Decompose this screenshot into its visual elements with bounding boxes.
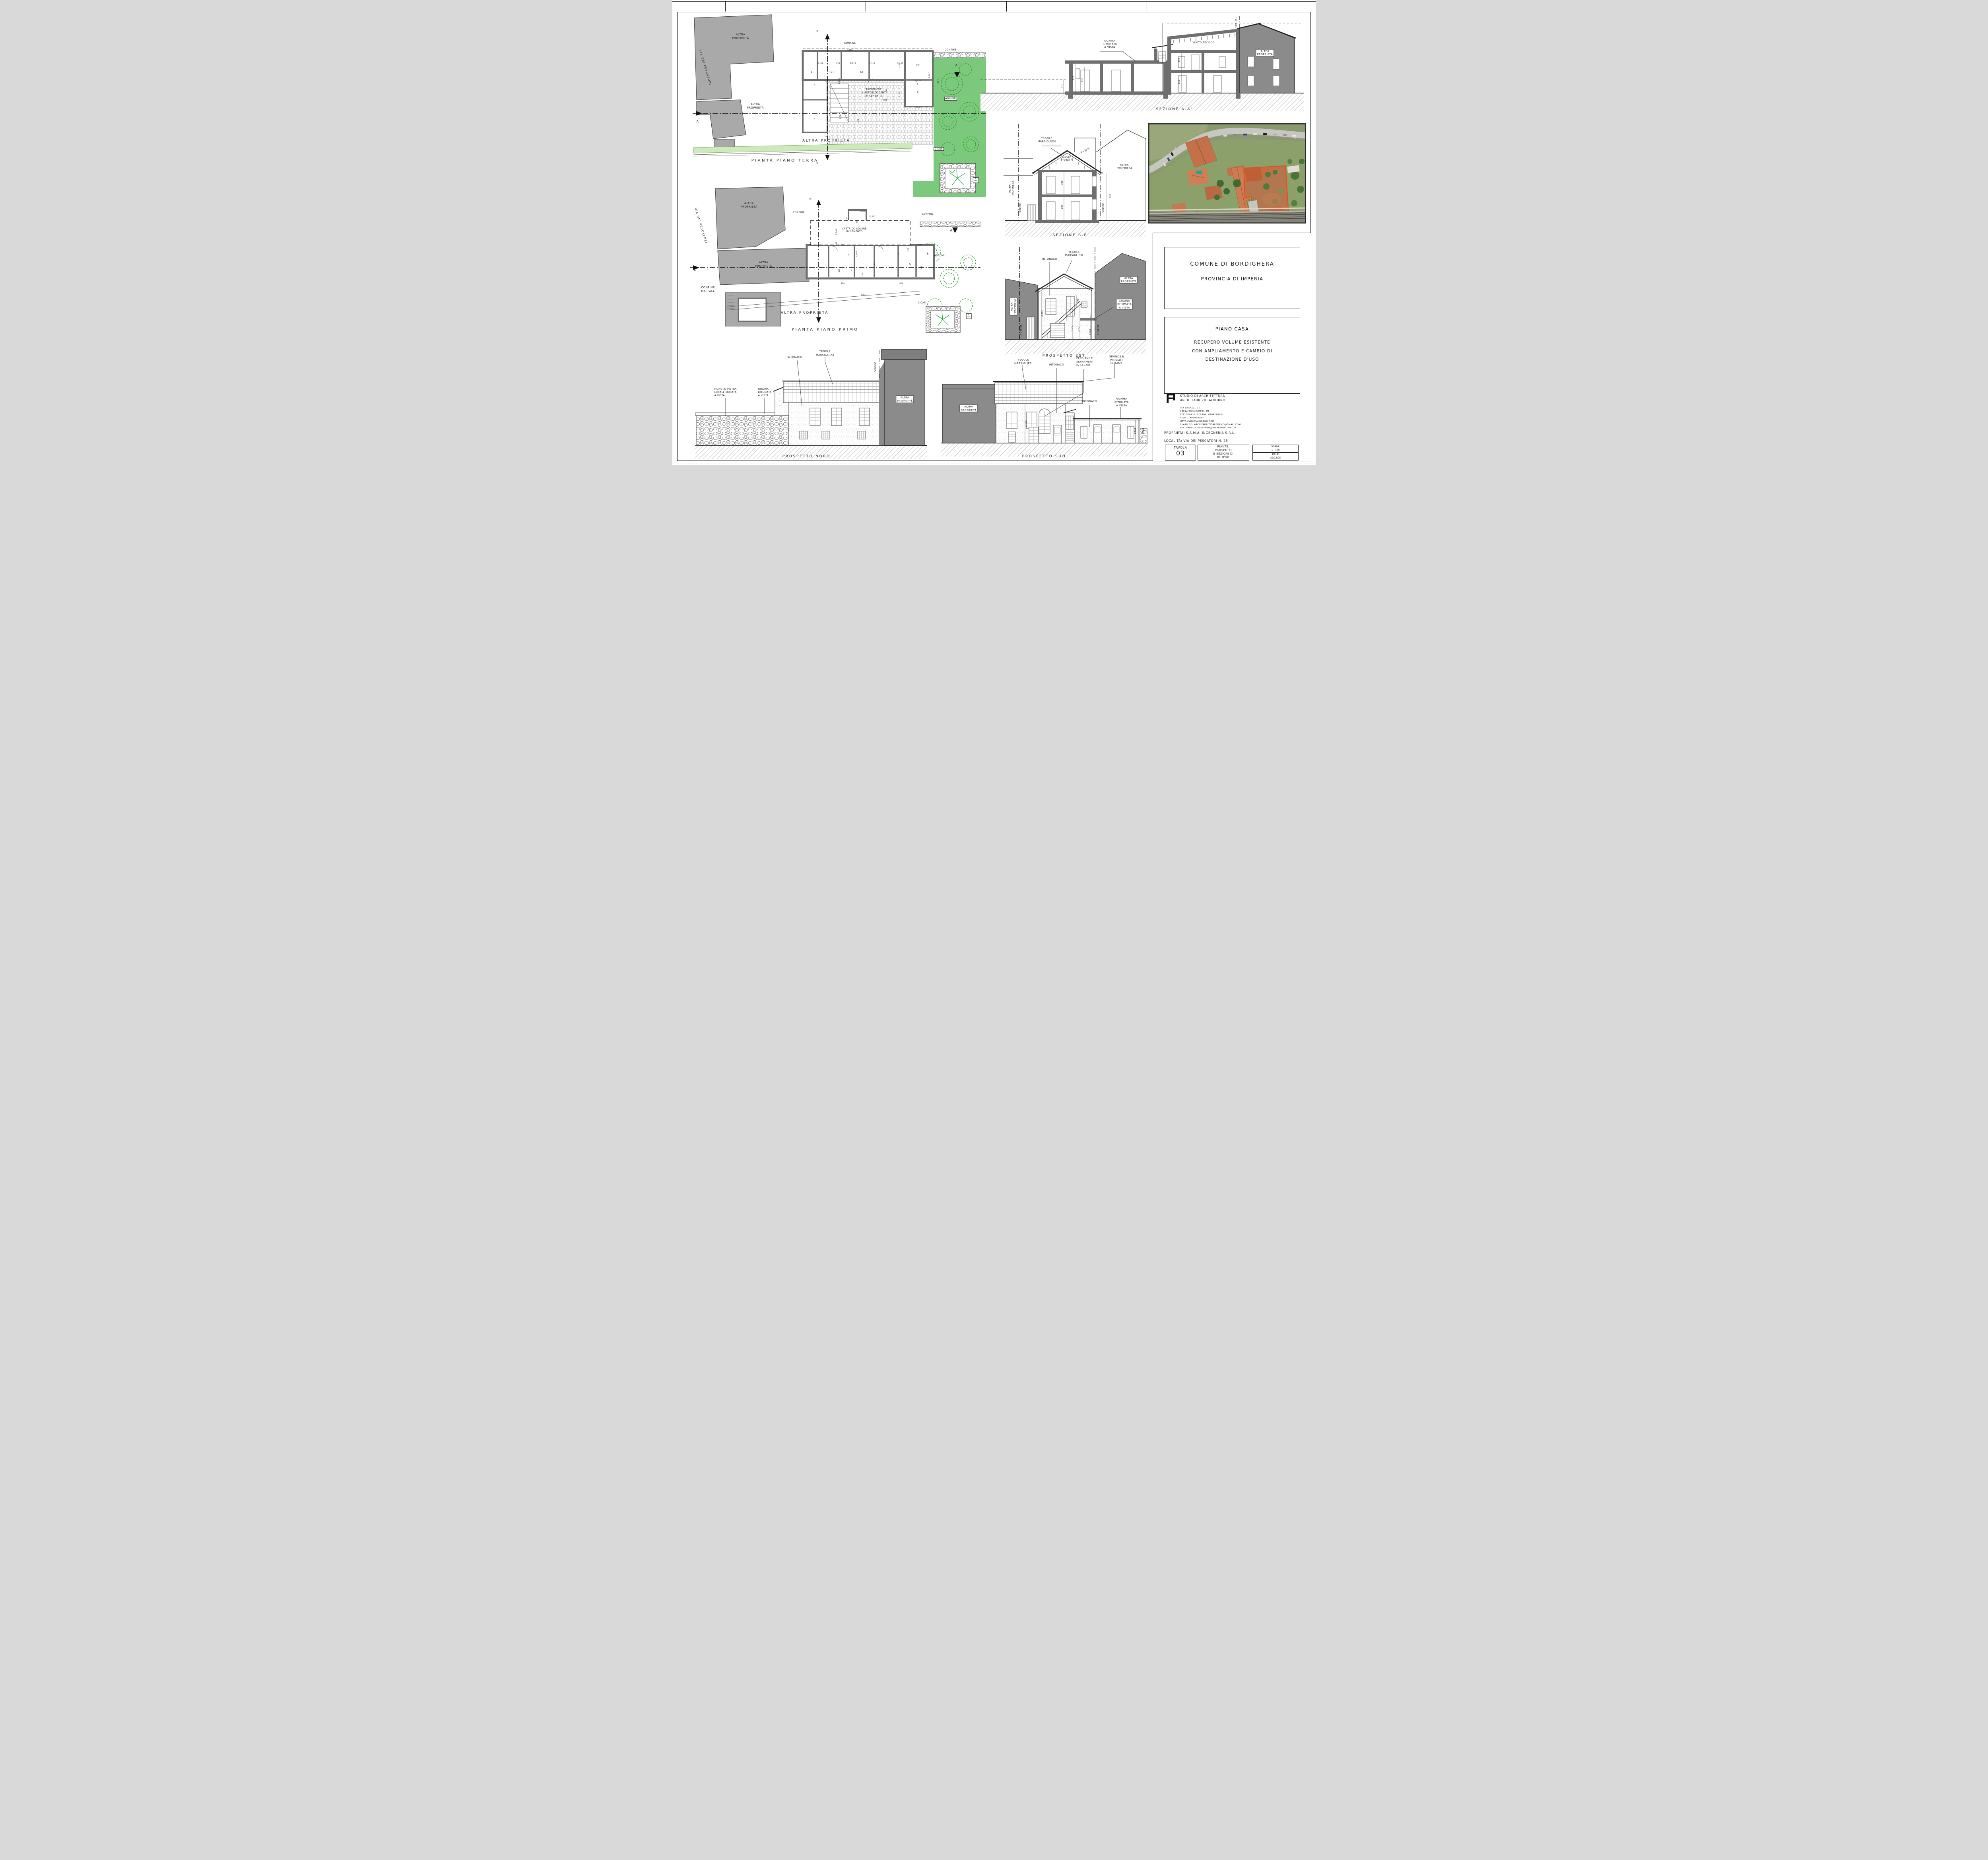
drawing-label: GUAINA BITUMATA A VISTA xyxy=(1116,299,1133,309)
drawing-label: PAVIMENTO IN AUTOBLOCCANTI IN CEMENTO xyxy=(861,88,887,97)
drawing-label: VIA DEI PESCATORI xyxy=(698,49,712,86)
piano-casa-title: PIANO CASA xyxy=(1215,326,1249,332)
drawing-label: GUAINA BITUMATA A VISTA xyxy=(1103,39,1117,49)
studio-logo-icon xyxy=(1165,393,1177,404)
drawing-label: CONFINE MAPPALE xyxy=(701,286,715,293)
drawing-label: 320 xyxy=(862,273,864,277)
scale-box: SCALA: 1 : 100 xyxy=(1252,445,1299,453)
drawing-label: B xyxy=(810,311,812,315)
drawing-label: INTONACO xyxy=(1042,257,1057,260)
drawing-label: 445 xyxy=(858,119,860,123)
drawing-label: 1055 xyxy=(861,294,866,297)
drawing-label: TEGOLE MARSIGLIESI xyxy=(1038,136,1056,143)
drawing-label: B xyxy=(927,253,928,256)
drawing-label: CONFINE xyxy=(945,49,956,52)
drawing-label: CICAS xyxy=(918,301,926,305)
drawing-label: CONFINE xyxy=(844,42,856,45)
comune-title: COMUNE DI BORDIGHERA xyxy=(1165,261,1300,267)
drawing-label: 150 xyxy=(846,217,848,221)
drawing-label: 3,781 xyxy=(840,113,842,119)
drawing-label: B xyxy=(816,162,818,165)
elevation-nord-labels: TEGOLE MARSIGLIESIINTONACOMURO IN PIETRA… xyxy=(695,345,927,461)
drawing-label: 2,504 xyxy=(1072,325,1074,332)
drawing-label: 2,704 xyxy=(1078,325,1081,332)
drawing-label: 0,950 xyxy=(860,211,866,213)
plan-piano-primo: ALTRA PROPRIETÀVIA DEI PESCATORIALTRA PR… xyxy=(687,186,980,334)
drawing-label: 355 xyxy=(841,244,845,247)
drawing-label: 650 xyxy=(1109,194,1112,198)
drawing-label: CT xyxy=(831,71,834,74)
elevation-sud-labels: TEGOLE MARSIGLIESIINTONACOPERSIANE E SER… xyxy=(941,353,1147,460)
drawing-label: 650 xyxy=(1158,58,1161,62)
drawing-label: VUOTO TECNICO xyxy=(1061,156,1073,163)
drawing-label: 250 xyxy=(1081,78,1084,82)
drawing-label: GUAINA BITUMATA A VISTA xyxy=(758,388,772,397)
scala-value: 1 : 100 xyxy=(1253,449,1298,452)
drawing-label: ALTRA PROPRIETÀ xyxy=(747,103,763,110)
owner-line: PROPRIETÀ: S.A.M.A. INGEGNERIA S.R.L. xyxy=(1164,431,1235,435)
section-b-b: TEGOLE MARSIGLIESIVUOTO TECNICOP=35%ALTR… xyxy=(1004,121,1147,242)
sheet-number-box: TAVOLA 03 xyxy=(1165,445,1196,461)
drawing-label: VUOTO TECNICO xyxy=(1192,41,1214,45)
studio-address: VIA LAGAZZI, 10 18012 BORDIGHERA, IM TEL… xyxy=(1180,406,1241,430)
drawing-label: ALTRA PROPRIETÀ xyxy=(1120,276,1138,284)
drawing-label: V IRR xyxy=(966,313,972,319)
sheet-title-box: PIANTE, PROSPETTI E SEZIONI DI RILIEVO xyxy=(1198,445,1249,461)
drawing-label: ALTRA PROPRIETÀ xyxy=(959,405,977,412)
drawing-label: CONFINE xyxy=(1019,202,1022,213)
drawing-label: VIA DEI PESCATORI xyxy=(693,208,708,245)
drawing-label: A xyxy=(955,64,958,68)
drawing-label: AGRUMI xyxy=(934,254,945,257)
fold-mark xyxy=(1006,1,1007,12)
scala-label: SCALA: xyxy=(1253,445,1298,449)
drawing-label: INTONACO xyxy=(787,356,802,359)
data-label: DATA: xyxy=(1253,453,1298,457)
title-block-header: COMUNE DI BORDIGHERA PROVINCIA DI IMPERI… xyxy=(1164,247,1300,309)
drawing-label: 270 xyxy=(1072,76,1075,80)
drawing-label: SEZIONE A-A' xyxy=(1156,107,1193,112)
drawing-label: 1,700 xyxy=(1089,329,1092,335)
location-line: LOCALITÀ: VIA DEI PESCATORI N. 25 xyxy=(1164,439,1228,443)
plan-piano-primo-labels: ALTRA PROPRIETÀVIA DEI PESCATORIALTRA PR… xyxy=(687,186,980,334)
tavola-number: 03 xyxy=(1165,449,1196,457)
drawing-label: 605 xyxy=(938,79,940,83)
drawing-label: 1,874 xyxy=(850,62,856,65)
aerial-labels: BUS xyxy=(1149,124,1306,223)
drawing-label: P=35% xyxy=(1081,147,1091,154)
drawing-label: ALTRA PROPRIETÀ xyxy=(781,311,829,316)
drawing-label: 2,906 xyxy=(836,229,838,235)
drawing-label: WC xyxy=(856,220,859,224)
drawing-label: LASTRICO SOLARE IN CEMENTO xyxy=(842,227,866,234)
project-description: RECUPERO VOLUME ESISTENTE CON AMPLIAMENT… xyxy=(1165,338,1300,364)
drawing-label: 3,256 xyxy=(915,80,921,82)
drawing-label: 2,704 xyxy=(1142,428,1145,434)
drawing-label: 150 xyxy=(907,248,910,252)
drawing-label: INTONACO xyxy=(1082,399,1097,402)
drawing-label: CICAS xyxy=(934,147,944,151)
drawing-label: 6,500 xyxy=(1041,310,1044,317)
drawing-label: 2,416 xyxy=(839,78,841,84)
drawing-label: BUS xyxy=(1293,135,1296,140)
drawing-label: C xyxy=(917,91,919,94)
drawing-label: V IRR xyxy=(973,177,979,183)
drawing-sheet: ALTRA PROPRIETÀVIA DEI PESCATORIALTRA PR… xyxy=(672,0,1316,465)
drawing-label: 2,434 xyxy=(899,62,901,68)
drawing-label: C xyxy=(850,269,852,272)
drawing-label: 290 xyxy=(1061,204,1064,208)
studio-name: STUDIO DI ARCHITETTURA ARCH. FABRIZIO AL… xyxy=(1180,394,1225,403)
drawing-label: 6,306 xyxy=(874,262,876,268)
drawing-label: A xyxy=(693,268,696,272)
plan-piano-terra-labels: ALTRA PROPRIETÀVIA DEI PESCATORIALTRA PR… xyxy=(690,13,986,207)
section-b-b-labels: TEGOLE MARSIGLIESIVUOTO TECNICOP=35%ALTR… xyxy=(1004,121,1147,242)
drawing-label: 1930 xyxy=(847,50,852,52)
title-block-object: PIANO CASA RECUPERO VOLUME ESISTENTE CON… xyxy=(1164,317,1300,394)
elevation-nord: TEGOLE MARSIGLIESIINTONACOMURO IN PIETRA… xyxy=(695,345,927,461)
drawing-label: 1,448 xyxy=(916,244,922,247)
title-block: COMUNE DI BORDIGHERA PROVINCIA DI IMPERI… xyxy=(1153,233,1311,461)
drawing-label: 2,418 xyxy=(869,62,875,65)
drawing-label: ALTRA PROPRIETÀ xyxy=(741,202,757,209)
fold-mark xyxy=(1147,1,1147,12)
elevation-est: INTONACOTEGOLE MARSIGLIESIALTRA PROPRIET… xyxy=(1004,244,1147,360)
drawing-label: 105 xyxy=(836,62,840,65)
drawing-label: 445 xyxy=(839,268,841,272)
drawing-label: 170 xyxy=(1061,84,1064,87)
drawing-label: INTONACO xyxy=(1049,363,1064,366)
fold-mark xyxy=(725,1,726,12)
drawing-label: 270 xyxy=(1162,54,1165,58)
drawing-label: MURO IN PIETRA LOCALE MURATA A VISTA xyxy=(714,388,737,397)
drawing-label: C xyxy=(848,254,850,257)
drawing-label: 260 xyxy=(1178,58,1181,62)
aerial-photo: BUS xyxy=(1148,123,1306,224)
date-box: DATA: 22/12/25 xyxy=(1252,453,1299,461)
drawing-label: 500 xyxy=(921,266,923,270)
drawing-label: B xyxy=(816,30,818,33)
drawing-label: 3,046 xyxy=(856,251,858,257)
drawing-label: A xyxy=(950,228,952,232)
drawing-label: ALTRA PROPRIETÀ xyxy=(802,139,850,144)
drawing-label: 3,118 xyxy=(817,62,823,65)
drawing-label: 6,500 xyxy=(1025,420,1028,427)
section-a-a: GUAINA BITUMATA A VISTAVUOTO TECNICOALTR… xyxy=(980,15,1304,115)
drawing-label: K xyxy=(813,84,815,87)
drawing-label: 260 xyxy=(1178,80,1181,84)
drawing-label: 105 xyxy=(836,242,838,246)
drawing-label: CONFINE xyxy=(1235,17,1238,27)
sheet-top-edge xyxy=(672,1,1316,2)
drawing-label: ALTRA PROPRIETÀ xyxy=(755,261,772,268)
drawing-label: 410 xyxy=(899,283,903,285)
drawing-label: ALTRA PROPRIETÀ xyxy=(1256,49,1274,57)
drawing-label: 5,144 xyxy=(897,62,903,65)
tavola-label: TAVOLA xyxy=(1165,446,1196,449)
drawing-label: ALTRA PROPRIETÀ xyxy=(732,33,749,40)
section-a-a-labels: GUAINA BITUMATA A VISTAVUOTO TECNICOALTR… xyxy=(980,15,1304,115)
drawing-label: CONFINE xyxy=(1097,325,1100,335)
drawing-label: PROSPETTO NORD xyxy=(782,455,831,459)
drawing-label: 2,504 xyxy=(1134,428,1137,434)
drawing-label: ALTRA PROPRIETÀ xyxy=(896,396,914,403)
drawing-label: PROSPETTO SUD xyxy=(1022,455,1066,459)
drawing-label: 995 xyxy=(883,99,887,102)
drawing-label: GUAINA BITUMATA A VISTA xyxy=(1114,397,1129,407)
drawing-label: S xyxy=(813,118,815,121)
drawing-label: CONFINE xyxy=(1102,202,1105,213)
elevation-est-labels: INTONACOTEGOLE MARSIGLIESIALTRA PROPRIET… xyxy=(1004,244,1147,360)
elevation-sud: TEGOLE MARSIGLIESIINTONACOPERSIANE E SER… xyxy=(941,353,1147,460)
drawing-label: 2,747 xyxy=(929,72,931,78)
drawing-label: 290 xyxy=(1061,180,1064,184)
drawing-label: TEGOLE MARSIGLIESI xyxy=(1014,358,1033,365)
drawing-label: PERSIANE E SERRAMENTI IN LEGNO xyxy=(1076,357,1095,367)
drawing-label: 305 xyxy=(916,107,920,109)
drawing-label: ALTRA PROPRIETÀ xyxy=(1010,297,1017,315)
provincia-title: PROVINCIA DI IMPERIA xyxy=(1165,276,1300,282)
data-value: 22/12/25 xyxy=(1253,457,1298,460)
drawing-label: B xyxy=(810,198,812,201)
drawing-label: B xyxy=(811,71,812,74)
drawing-label: S xyxy=(909,263,911,266)
drawing-label: AGRUMI xyxy=(944,97,957,101)
drawing-label: PIANTA PIANO PRIMO xyxy=(792,327,858,332)
drawing-label: ALTRA PROPRIETÀ xyxy=(1008,181,1015,196)
drawing-label: PIANTA PIANO TERRA xyxy=(751,158,819,163)
drawing-label: CT xyxy=(916,64,920,67)
drawing-label: 270 xyxy=(1077,299,1080,303)
drawing-label: 10,507 xyxy=(868,216,876,218)
drawing-label: CT xyxy=(860,71,864,74)
drawing-label: GRONDE E PLUVIALI IN RAME xyxy=(1109,355,1124,365)
fold-mark xyxy=(866,1,866,12)
drawing-label: CONFINE xyxy=(874,362,877,373)
drawing-label: CONFINE xyxy=(1020,325,1023,335)
drawing-label: 490 xyxy=(841,283,845,285)
drawing-label: 395 xyxy=(824,136,828,138)
plan-piano-terra: ALTRA PROPRIETÀVIA DEI PESCATORIALTRA PR… xyxy=(690,13,986,207)
drawing-label: A xyxy=(697,120,699,124)
drawing-label: TEGOLE MARSIGLIESI xyxy=(816,350,834,357)
drawing-label: 630 xyxy=(886,89,888,93)
drawing-label: SEZIONE B-B' xyxy=(1053,233,1090,238)
drawing-label: TEGOLE MARSIGLIESI xyxy=(1065,250,1083,257)
drawing-label: ALTRA PROPRIETÀ xyxy=(1116,163,1132,170)
drawing-label: CONFINE xyxy=(793,211,804,214)
drawing-label: 3,752 xyxy=(899,92,901,98)
drawing-label: K xyxy=(897,253,899,256)
drawing-label: CONFINE xyxy=(922,213,934,216)
sheet-bottom-edge xyxy=(672,463,1316,463)
